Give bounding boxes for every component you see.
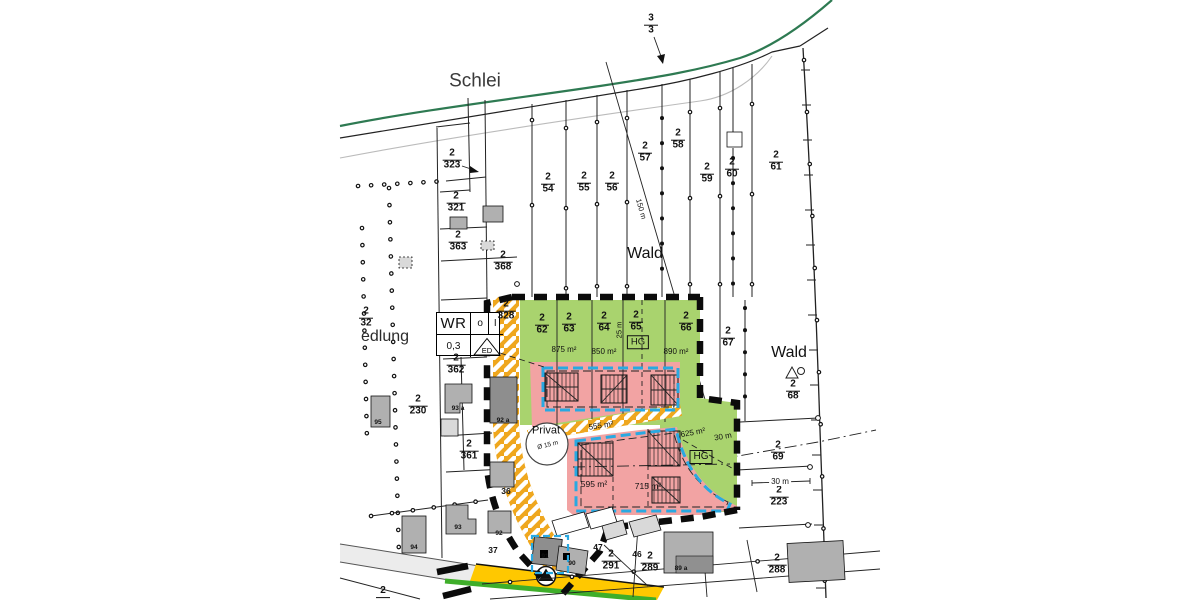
parcel-2-56: 2 56 <box>605 172 619 195</box>
house-93: 93 <box>454 525 461 532</box>
area-850: 850 m² <box>592 348 617 356</box>
parcel-2-60: 2 60 <box>725 158 739 181</box>
house-46: 46 <box>632 550 641 559</box>
hg-upper: HG <box>627 335 649 349</box>
parcel-2-223: 2 223 <box>770 486 789 509</box>
house-90: 90 <box>568 561 575 568</box>
parcel-2-67: 2 67 <box>721 327 735 350</box>
parcel-2-68: 2 68 <box>786 380 800 403</box>
parcel-2-363: 2 363 <box>449 231 468 254</box>
parcel-2-57: 2 57 <box>638 142 652 165</box>
area-595: 595 m² <box>581 480 607 489</box>
parcel-2-66: 2 66 <box>679 312 693 335</box>
parcel-2-63: 2 63 <box>562 313 576 336</box>
parcel-2-323: 2 323 <box>443 149 462 172</box>
water-label: Schlei <box>449 72 501 91</box>
parcel-2-62: 2 62 <box>535 314 549 337</box>
parcel-2-58: 2 58 <box>671 129 685 152</box>
building-36 <box>490 462 514 487</box>
house-89a: 89 a <box>675 566 688 573</box>
parcel-2-362: 2 362 <box>447 354 466 377</box>
privat-label: Privat <box>532 426 560 437</box>
measure-25m: 25 m <box>615 322 623 339</box>
parcel-edge-cut: 2 <box>376 586 390 598</box>
parcel-2-32: 2 32 <box>359 307 373 330</box>
parcel-2-230: 2 230 <box>409 395 428 418</box>
house-36: 36 <box>501 487 510 496</box>
svg-text:ED: ED <box>482 346 493 355</box>
house-93a: 93 a <box>452 406 465 413</box>
parcel-2-65: 2 65 <box>629 311 643 334</box>
area-875: 875 m² <box>552 346 577 354</box>
zoning-bauweise: o <box>477 318 483 329</box>
cadastral-site-plan: WR o I 0,3 ED 3 3 2 323 2 321 <box>0 0 1200 600</box>
area-715: 715 m² <box>635 482 661 491</box>
parcel-2-321: 2 321 <box>447 192 466 215</box>
parcel-2-69: 2 69 <box>771 441 785 464</box>
zoning-table: WR o I 0,3 ED <box>436 312 500 356</box>
parcel-2-64: 2 64 <box>597 312 611 335</box>
measure-30m-right: 30 m <box>769 478 791 486</box>
forest-label-right: Wald <box>771 345 807 361</box>
divider <box>488 313 489 334</box>
parcel-2-288: 2 288 <box>768 554 787 577</box>
parcel-2-61: 2 61 <box>769 151 783 174</box>
house-92a: 92 a <box>497 418 510 425</box>
parcel-2-368: 2 368 <box>494 251 513 274</box>
parcel-2-291: 2 291 <box>602 550 621 573</box>
field-shed <box>727 132 742 147</box>
forest-label-top: Wald <box>627 246 663 262</box>
settlement-label: edlung <box>361 329 409 345</box>
building-southeast <box>787 541 845 583</box>
parcel-2-54: 2 54 <box>541 173 555 196</box>
parcel-2-59: 2 59 <box>700 163 714 186</box>
parcel-3-3: 3 3 <box>644 14 658 37</box>
house-92: 92 <box>495 531 502 538</box>
house-94: 94 <box>410 545 417 552</box>
house-95: 95 <box>374 420 381 427</box>
parcel-2-328: 2 328 <box>497 300 516 323</box>
house-91: 91 <box>541 554 548 561</box>
area-890: 890 m² <box>664 348 689 356</box>
parcel-2-55: 2 55 <box>577 172 591 195</box>
parcel-2-289: 2 289 <box>641 552 660 575</box>
house-47: 47 <box>593 543 602 552</box>
house-37: 37 <box>488 546 497 555</box>
map-canvas <box>0 0 1200 600</box>
ed-triangle-icon: ED <box>471 336 503 357</box>
parcel-2-361: 2 361 <box>460 440 479 463</box>
hg-lower: HG <box>690 450 713 464</box>
zoning-haustyp: ED <box>471 335 503 357</box>
zoning-use: WR <box>437 313 471 335</box>
